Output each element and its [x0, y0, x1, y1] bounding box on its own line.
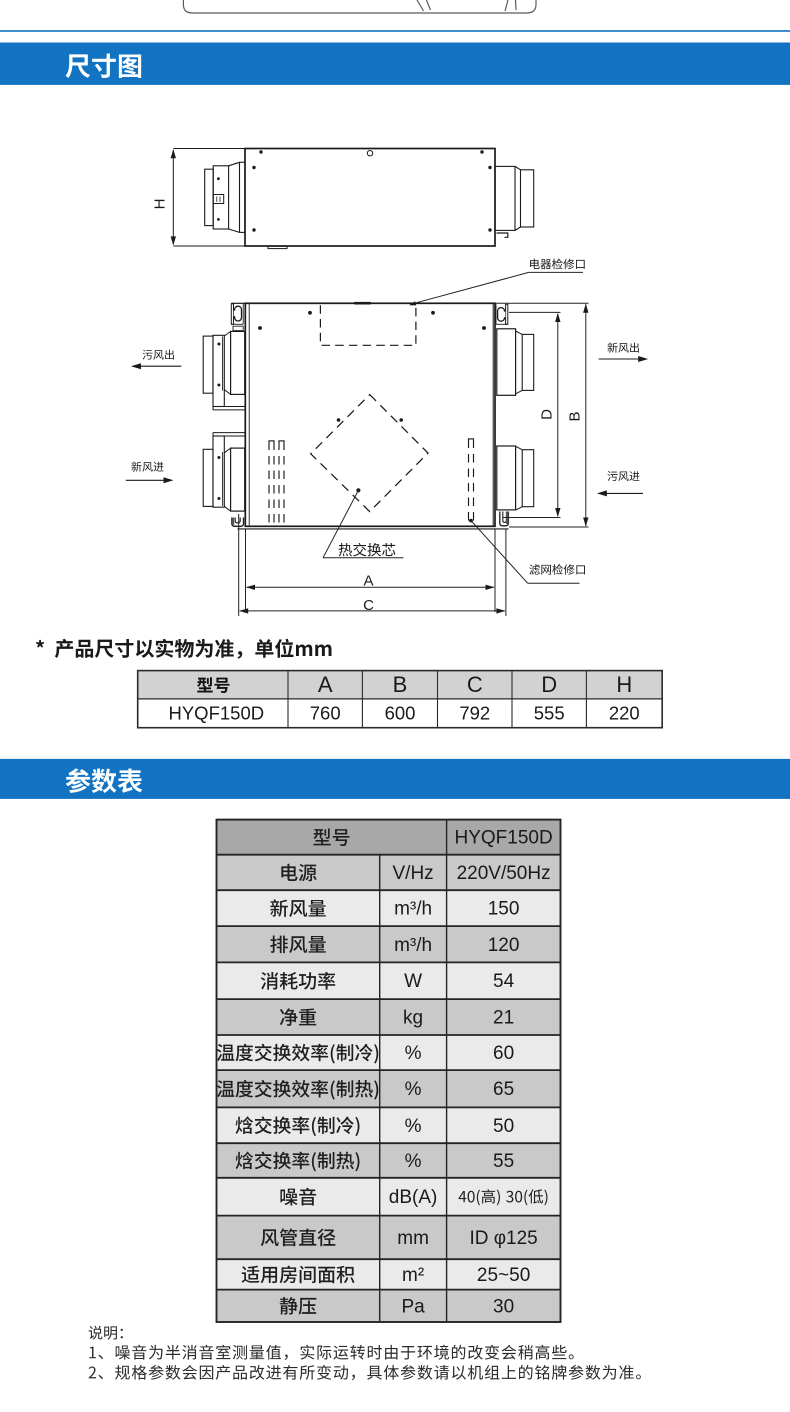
svg-text:50: 50: [493, 1116, 514, 1137]
svg-text:dB(A): dB(A): [389, 1187, 438, 1208]
svg-text:25~50: 25~50: [477, 1265, 530, 1286]
svg-text:21: 21: [493, 1008, 514, 1029]
svg-text:m³/h: m³/h: [394, 899, 432, 920]
svg-text:%: %: [405, 1116, 422, 1137]
svg-text:%: %: [405, 1151, 422, 1172]
svg-text:54: 54: [493, 971, 515, 992]
svg-text:30: 30: [493, 1296, 514, 1317]
svg-text:555: 555: [534, 703, 565, 724]
svg-text:B: B: [567, 411, 584, 421]
svg-text:792: 792: [459, 703, 490, 724]
svg-text:A: A: [318, 672, 333, 697]
svg-text:mm: mm: [397, 1228, 429, 1249]
svg-text:55: 55: [493, 1151, 514, 1172]
svg-text:A: A: [363, 573, 373, 590]
svg-text:HYQF150D: HYQF150D: [454, 828, 552, 849]
svg-text:120: 120: [488, 935, 520, 956]
svg-text:65: 65: [493, 1079, 514, 1100]
svg-text:60: 60: [493, 1043, 514, 1064]
svg-text:%: %: [405, 1079, 422, 1100]
svg-text:D: D: [541, 672, 557, 697]
svg-text:600: 600: [385, 703, 416, 724]
svg-text:H: H: [152, 199, 169, 210]
svg-text:m³/h: m³/h: [394, 935, 432, 956]
svg-text:C: C: [467, 672, 483, 697]
svg-text:C: C: [363, 597, 374, 614]
svg-text:W: W: [404, 971, 422, 992]
svg-text:V/Hz: V/Hz: [393, 863, 434, 884]
svg-text:B: B: [393, 672, 408, 697]
svg-text:220V/50Hz: 220V/50Hz: [457, 863, 551, 884]
svg-text:D: D: [539, 409, 556, 420]
svg-text:kg: kg: [403, 1008, 423, 1029]
svg-text:Pa: Pa: [401, 1296, 425, 1317]
svg-text:%: %: [405, 1043, 422, 1064]
svg-text:H: H: [616, 672, 632, 697]
svg-text:220: 220: [609, 703, 640, 724]
svg-text:HYQF150D: HYQF150D: [168, 703, 264, 724]
svg-text:150: 150: [488, 899, 520, 920]
svg-text:m²: m²: [402, 1265, 424, 1286]
svg-text:ID φ125: ID φ125: [469, 1228, 537, 1249]
svg-text:760: 760: [310, 703, 341, 724]
